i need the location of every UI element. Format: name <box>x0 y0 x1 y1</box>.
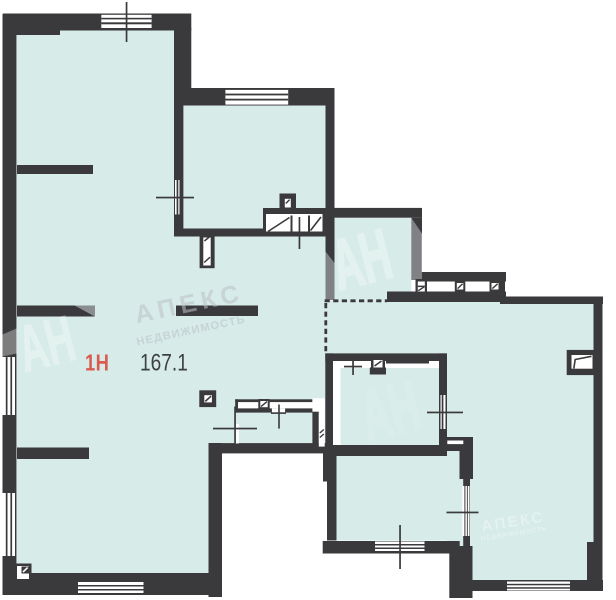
svg-text:167.1: 167.1 <box>140 348 188 376</box>
svg-text:1Н: 1Н <box>85 351 109 376</box>
